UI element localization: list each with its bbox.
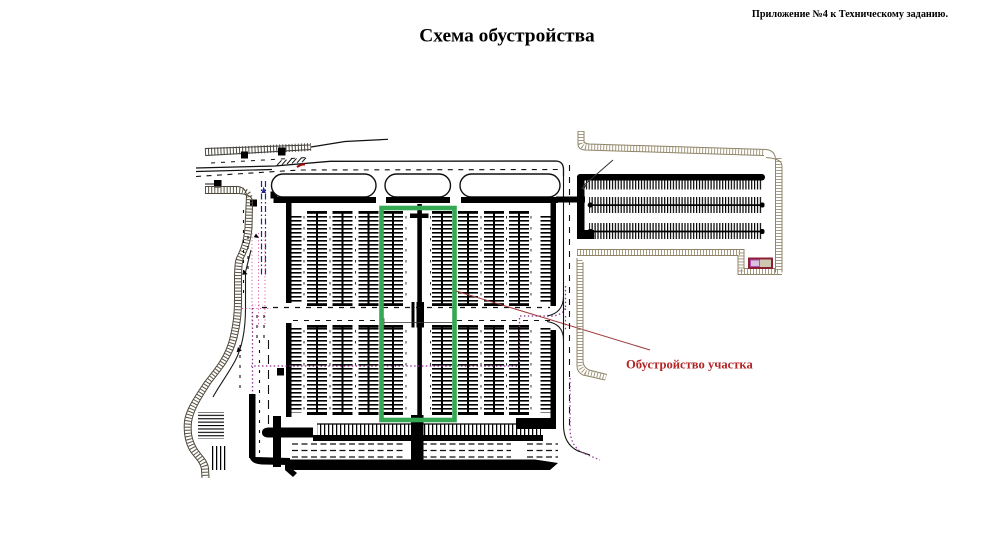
svg-text:Приложение №4 к Техническому з: Приложение №4 к Техническому заданию. bbox=[752, 9, 949, 20]
svg-text:Схема обустройства: Схема обустройства bbox=[419, 26, 595, 47]
svg-text:Обустройство участка: Обустройство участка bbox=[626, 358, 753, 372]
